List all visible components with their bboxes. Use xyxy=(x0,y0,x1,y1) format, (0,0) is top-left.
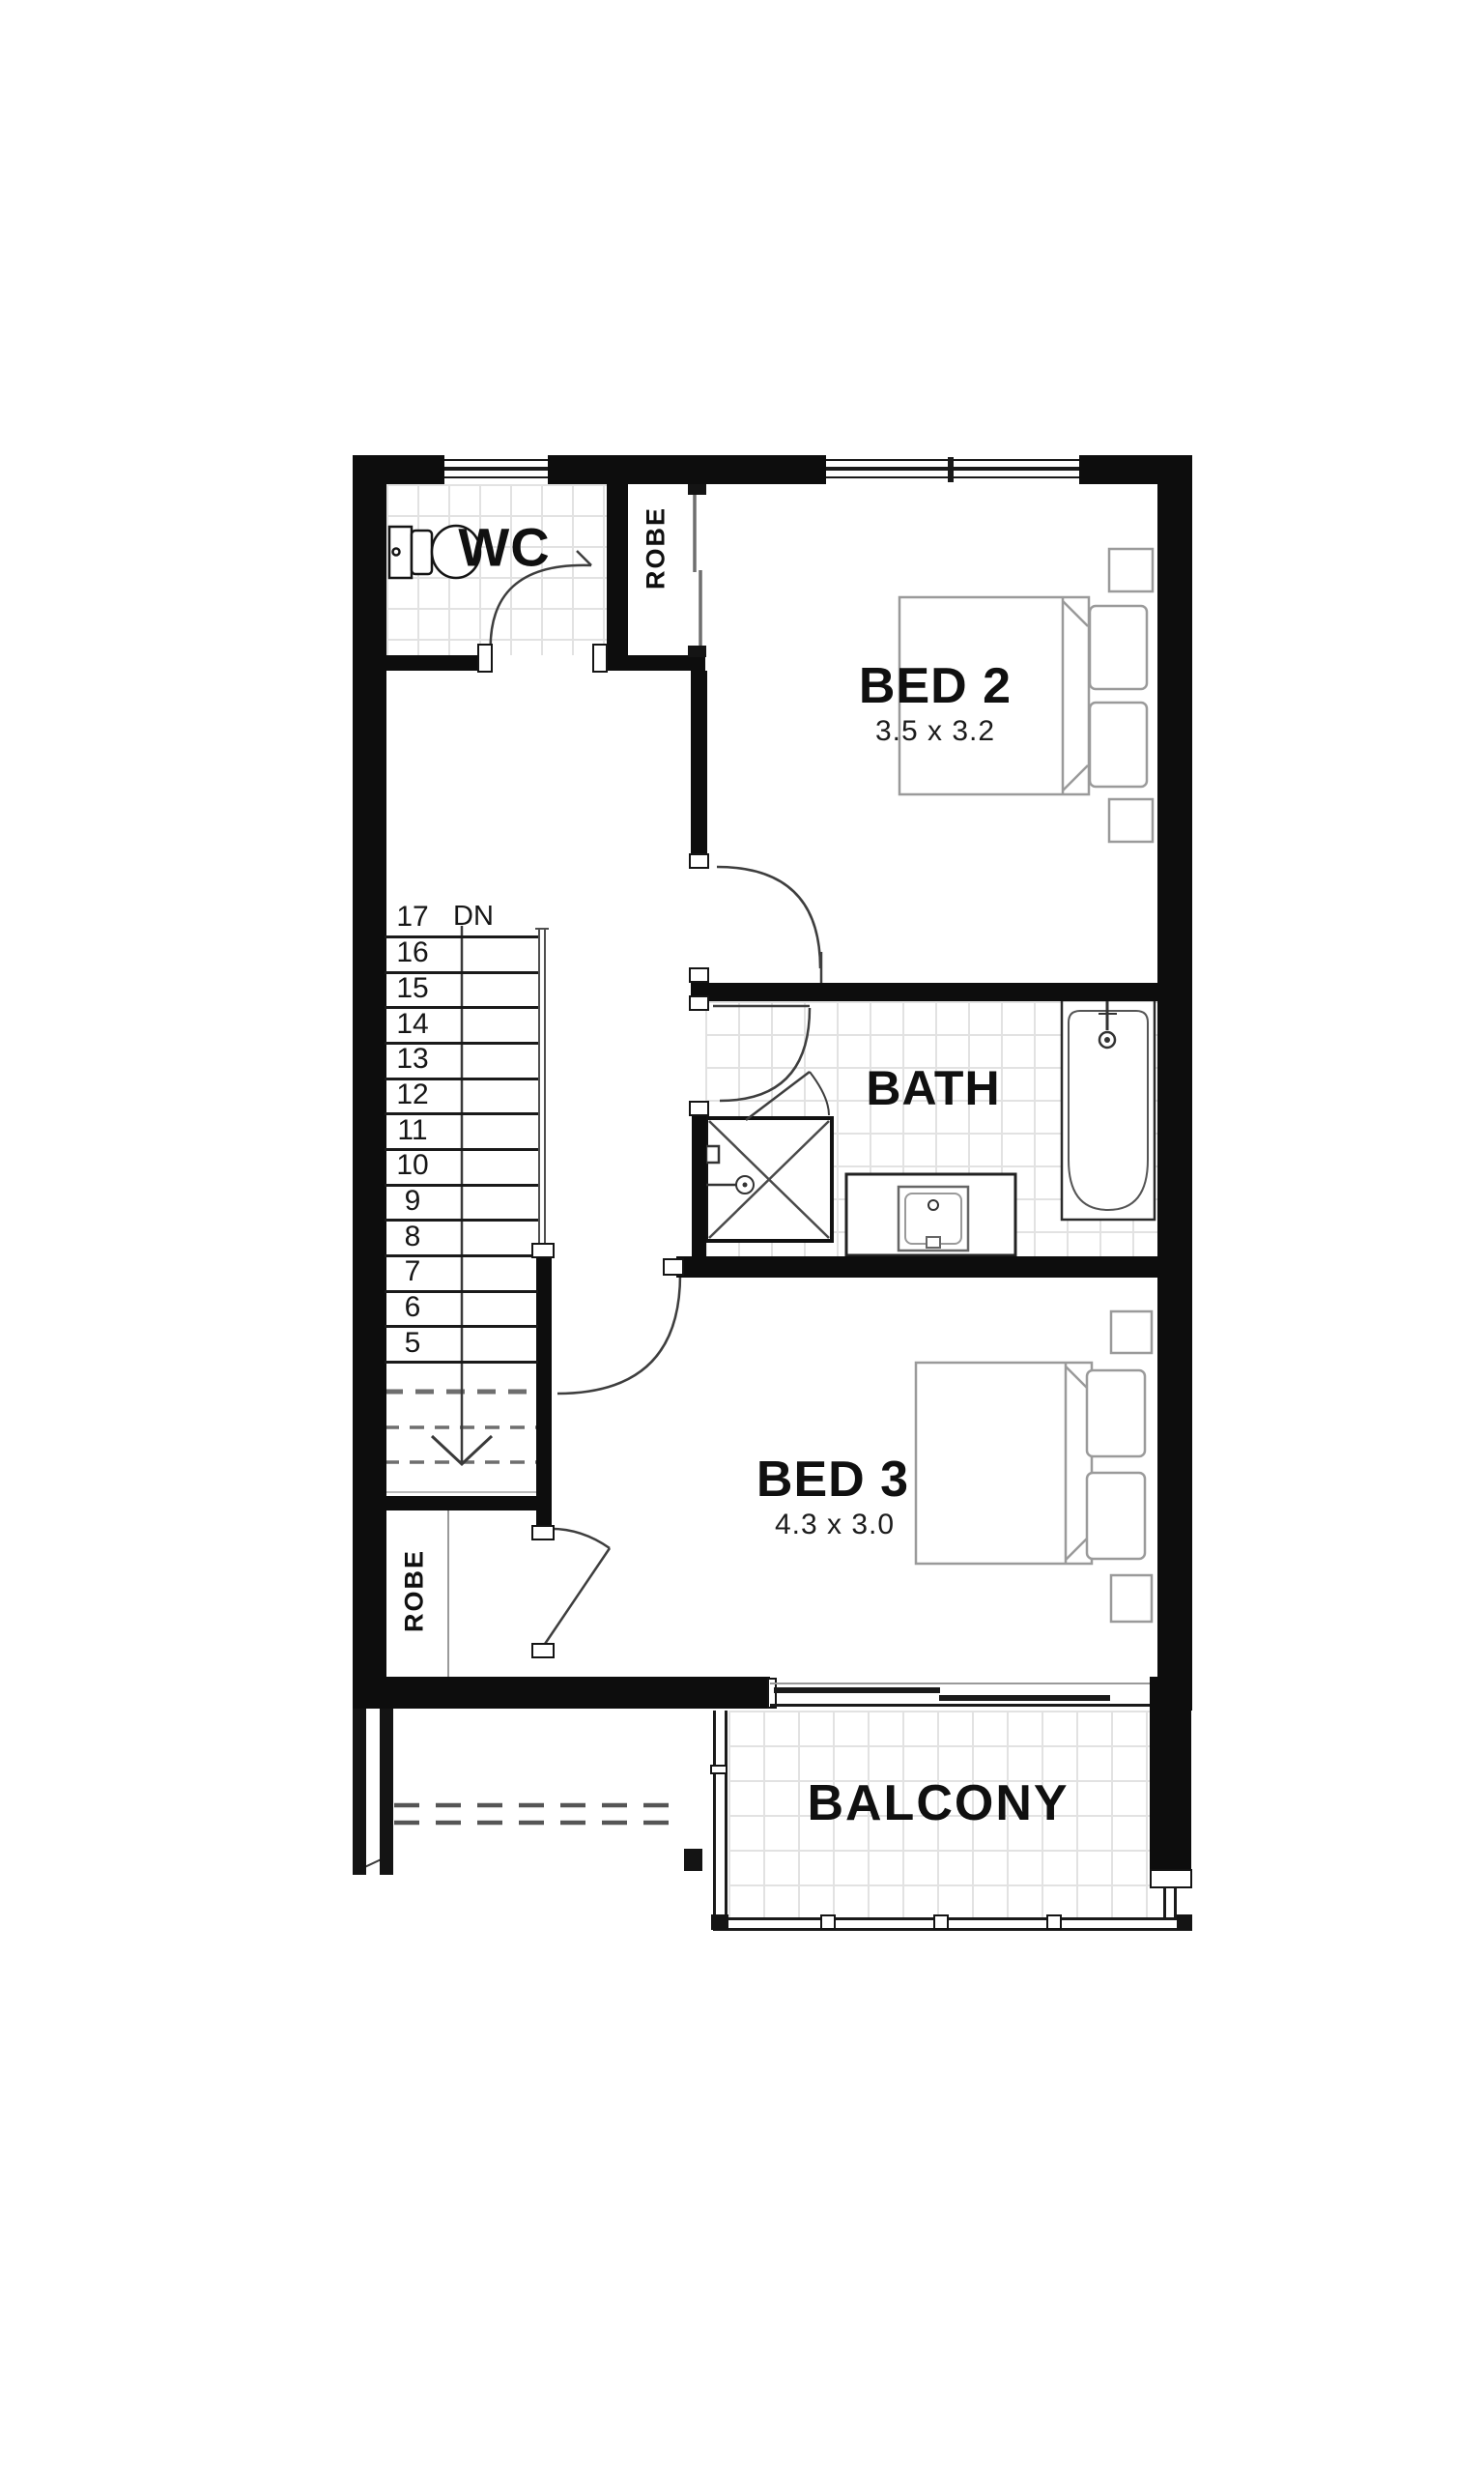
bath-label: BATH xyxy=(866,1060,1000,1116)
wall-stairwell xyxy=(536,1247,552,1539)
wall-wc-robe-divider xyxy=(607,484,628,655)
robe-bottom-door xyxy=(543,1529,610,1647)
bed2-nightstand-bottom xyxy=(1109,799,1153,842)
bed2-door-arc xyxy=(717,867,820,968)
plan-linework xyxy=(0,0,1484,2474)
robe-bottom-door-arc xyxy=(545,1529,610,1548)
robe-bottom-shelf-line xyxy=(447,1510,449,1677)
bath-door-hinge-top xyxy=(689,995,709,1011)
floor-plan: 17 16 15 14 13 12 11 10 9 8 7 6 5 DN WC … xyxy=(0,0,1484,2474)
wall-top-middle xyxy=(548,455,826,484)
wall-bottom-right xyxy=(1150,1677,1192,1709)
robe-top-sliding-door xyxy=(695,489,700,651)
wall-bed2-west xyxy=(691,671,707,856)
wc-window-frame-mid xyxy=(444,467,548,471)
robe-bottom-door-leaf xyxy=(543,1548,610,1647)
balcony-rail-bottom-1 xyxy=(713,1917,1192,1920)
wall-bottom-left xyxy=(353,1677,770,1709)
bed2-label: BED 2 xyxy=(859,657,1012,715)
wall-right-exterior xyxy=(1157,455,1192,1711)
lower-wall-column-outer xyxy=(353,1709,366,1875)
lower-storey-dashed xyxy=(394,1805,676,1823)
bed2-pillow-top xyxy=(1090,606,1147,689)
wall-hall-bath xyxy=(692,1114,706,1256)
balcony-rail-left-1 xyxy=(713,1711,716,1931)
toilet-seat xyxy=(412,531,432,574)
bed3-door-hinge-left xyxy=(531,1243,555,1258)
balcony-rail-post-1 xyxy=(820,1914,836,1930)
stair-step-number: 8 xyxy=(385,1221,441,1253)
wc-label: WC xyxy=(458,516,550,579)
shower-door-arc xyxy=(810,1072,829,1115)
wall-wc-bottom-right xyxy=(594,655,705,671)
wc-door-jamb-right xyxy=(592,644,608,673)
toilet-button xyxy=(393,549,400,556)
balcony-rail-right-1 xyxy=(1163,1887,1166,1918)
stair-step-number: 7 xyxy=(385,1255,441,1288)
balcony-rail-post-3 xyxy=(1046,1914,1062,1930)
stair-step-number: 13 xyxy=(385,1043,441,1076)
lower-wall-column-inner xyxy=(380,1709,393,1875)
robe-top-label: ROBE xyxy=(642,506,671,590)
bed2-door-hinge-top xyxy=(689,853,709,869)
bed3-furniture xyxy=(916,1311,1152,1622)
bathtub-drain-dot xyxy=(1104,1037,1110,1043)
wc-door-jamb-left xyxy=(477,644,493,673)
bed3-label: BED 3 xyxy=(756,1451,909,1509)
balcony-rail-post-2 xyxy=(933,1914,949,1930)
balcony-rail-left-post xyxy=(710,1765,728,1774)
shower-rose-dot xyxy=(743,1183,748,1188)
robe-door-hinge-top xyxy=(531,1525,555,1540)
vanity xyxy=(846,1174,1015,1255)
balcony-slider-sill xyxy=(770,1704,1150,1707)
bed3-door-arc xyxy=(557,1275,680,1394)
wall-wc-bottom-left xyxy=(386,655,483,671)
wc-window-frame-top xyxy=(444,459,548,461)
stair-step-number: 15 xyxy=(385,972,441,1005)
balcony-label: BALCONY xyxy=(807,1774,1069,1832)
bed2-door-hinge-bottom xyxy=(689,967,709,983)
bath-door xyxy=(713,1006,810,1101)
bed3-nightstand-bottom xyxy=(1111,1575,1152,1622)
wall-left-exterior xyxy=(353,455,386,1709)
vanity-tap xyxy=(928,1200,938,1210)
balcony-rail-corner-left xyxy=(711,1914,728,1930)
balcony-slider-panel-2 xyxy=(939,1695,1110,1701)
stair-down-label: DN xyxy=(444,901,502,933)
stair-step-number: 9 xyxy=(385,1185,441,1218)
bed2-window xyxy=(826,455,1079,484)
stair-step-number: 11 xyxy=(385,1114,441,1147)
robe-bottom-label: ROBE xyxy=(400,1549,430,1632)
bed2-dims: 3.5 x 3.2 xyxy=(875,715,995,748)
robe-door-hinge-bottom xyxy=(531,1643,555,1658)
balcony-right-wall xyxy=(1150,1709,1191,1869)
stair-step-number: 17 xyxy=(385,901,441,934)
bed2-window-mullion xyxy=(948,457,954,482)
wc-window-frame-bottom xyxy=(444,476,548,478)
stair-tread xyxy=(385,1361,538,1364)
bed3-door-hinge-right xyxy=(663,1258,684,1276)
stair-step-number: 16 xyxy=(385,936,441,969)
bed3-pillow-top xyxy=(1087,1370,1145,1456)
balcony-right-wall-end xyxy=(1150,1869,1192,1888)
shower-mixer xyxy=(706,1146,719,1163)
stair-handrail xyxy=(535,929,549,1249)
wall-bath-south xyxy=(676,1256,1157,1278)
wc-door-leaf xyxy=(577,551,591,565)
stair-step-number: 14 xyxy=(385,1008,441,1041)
stair-step-number: 5 xyxy=(385,1327,441,1360)
balcony-rail-bottom-2 xyxy=(713,1928,1192,1931)
bed3-nightstand-top xyxy=(1111,1311,1152,1353)
bathtub xyxy=(1062,1000,1155,1220)
stair-step-number: 12 xyxy=(385,1079,441,1111)
robe-slider-cap-bottom xyxy=(688,646,706,657)
bath-door-arc xyxy=(720,1008,810,1101)
bed2-door xyxy=(717,867,821,983)
stair-step-number: 6 xyxy=(385,1291,441,1324)
balcony-rail-left-2 xyxy=(725,1711,728,1931)
bed2-nightstand-top xyxy=(1109,549,1153,591)
wc-door-arc xyxy=(491,565,591,657)
bed3-pillow-bottom xyxy=(1087,1473,1145,1559)
balcony-slider-panel-1 xyxy=(774,1687,940,1693)
bed3-dims: 4.3 x 3.0 xyxy=(775,1509,895,1541)
stair-step-number: 10 xyxy=(385,1149,441,1182)
bath-door-hinge-bottom xyxy=(689,1101,709,1116)
balcony-slider-track xyxy=(770,1683,1150,1684)
balcony-post xyxy=(684,1849,702,1871)
wall-bath-north xyxy=(691,983,1157,1001)
robe-slider-cap-top xyxy=(688,484,706,495)
bed2-pillow-bottom xyxy=(1090,703,1147,787)
balcony-rail-corner-right xyxy=(1177,1914,1192,1930)
wall-stair-bottom xyxy=(385,1496,552,1510)
wc-window xyxy=(444,455,548,484)
vanity-waste xyxy=(927,1237,940,1248)
shower xyxy=(706,1072,832,1241)
